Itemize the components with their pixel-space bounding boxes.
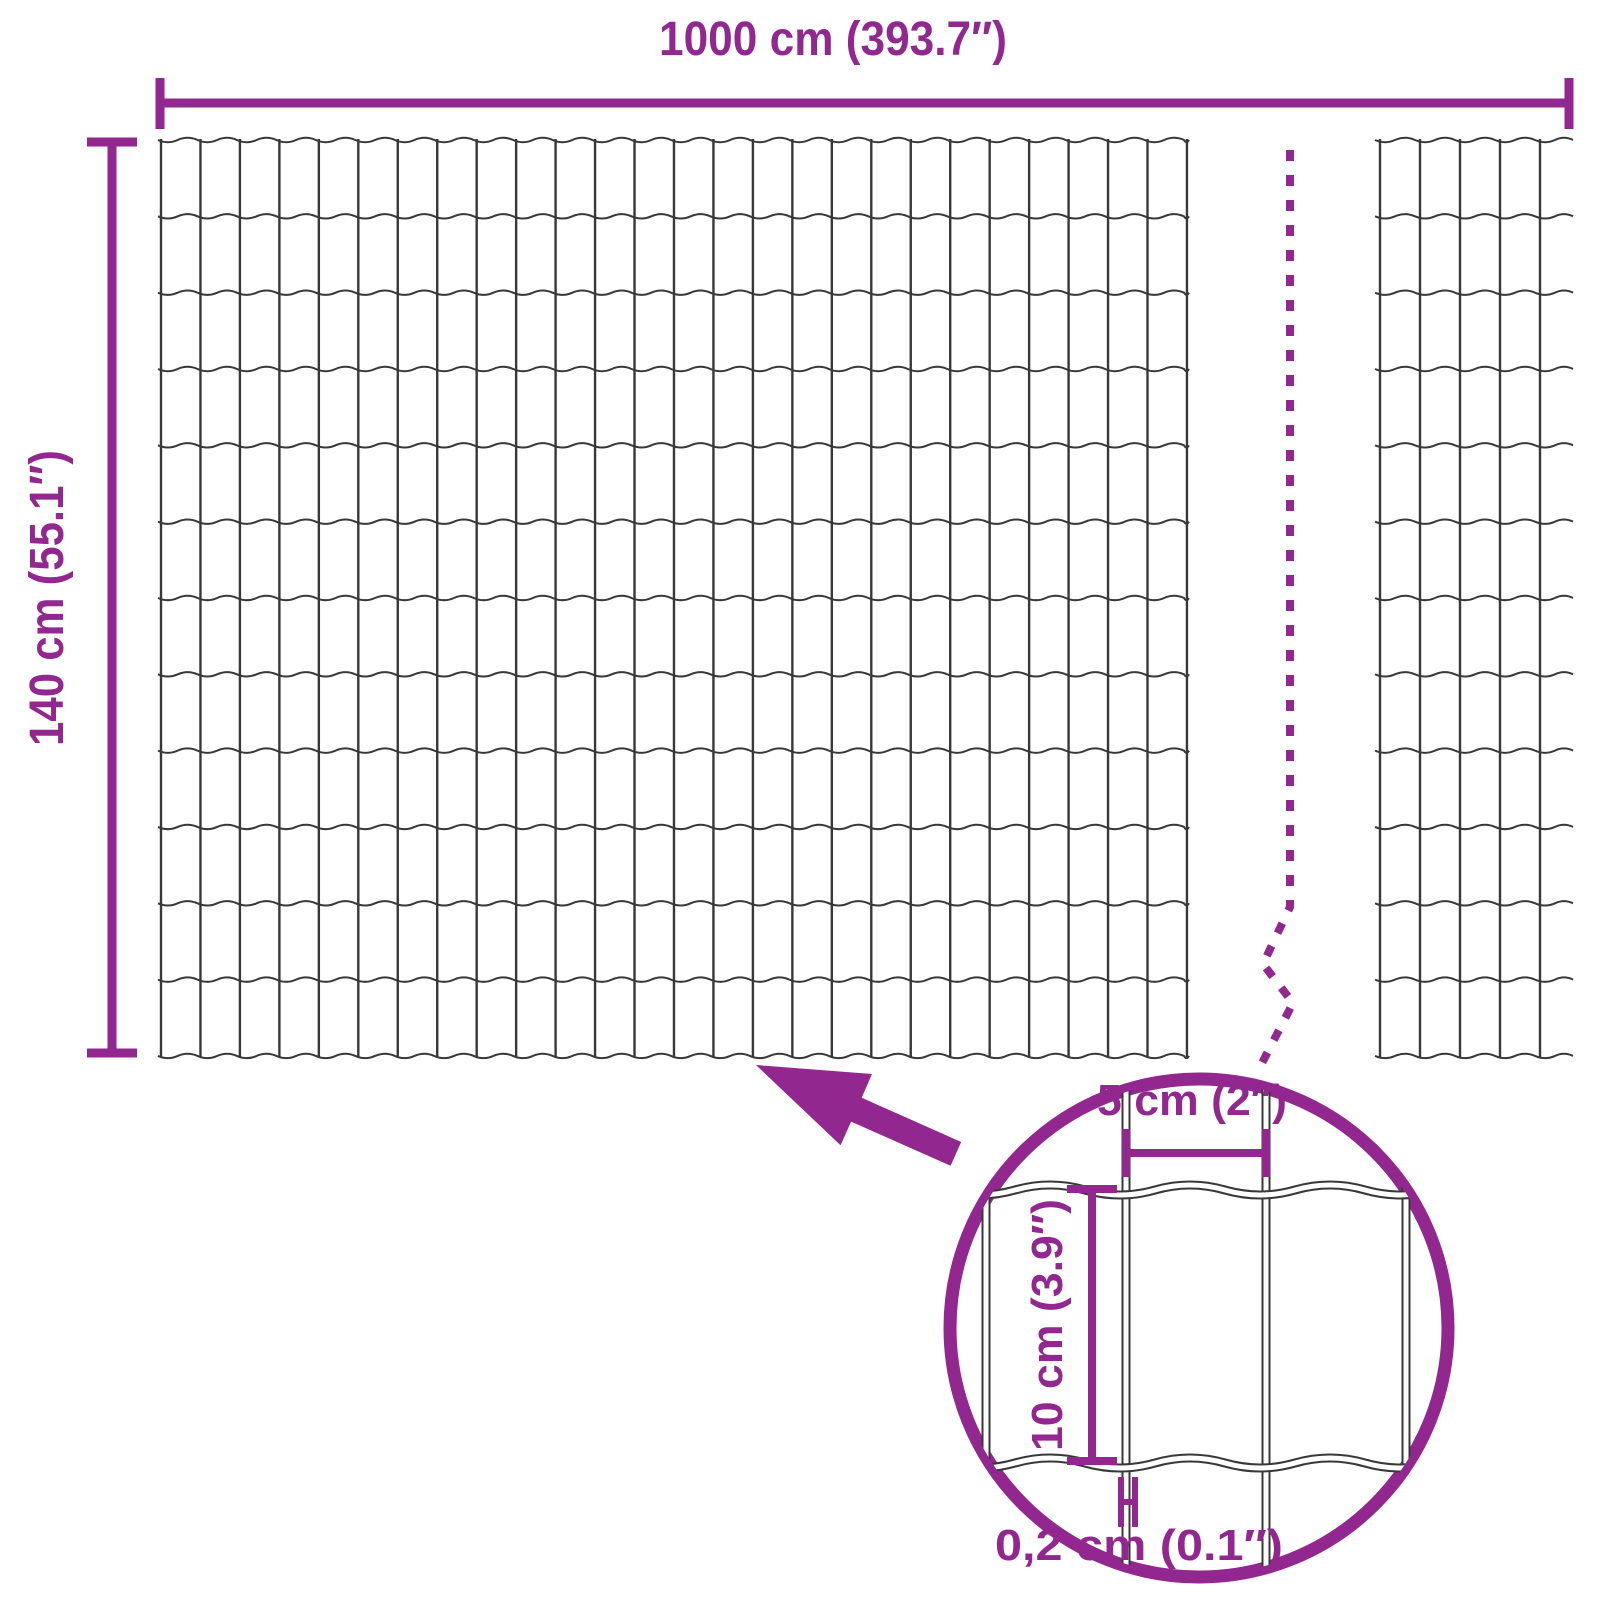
fence-dimension-diagram: 1000 cm (393.7″) 140 cm (55.1″) 5 cm (2″… [0, 0, 1600, 1600]
cell-height-label: 10 cm (3.9″) [1023, 1199, 1072, 1451]
wire-thickness-label: 0,2 cm (0.1″) [995, 1521, 1283, 1570]
cell-width-label: 5 cm (2″) [1097, 1076, 1287, 1125]
width-dimension-label: 1000 cm (393.7″) [659, 13, 1007, 66]
height-dimension-label: 140 cm (55.1″) [21, 450, 74, 746]
